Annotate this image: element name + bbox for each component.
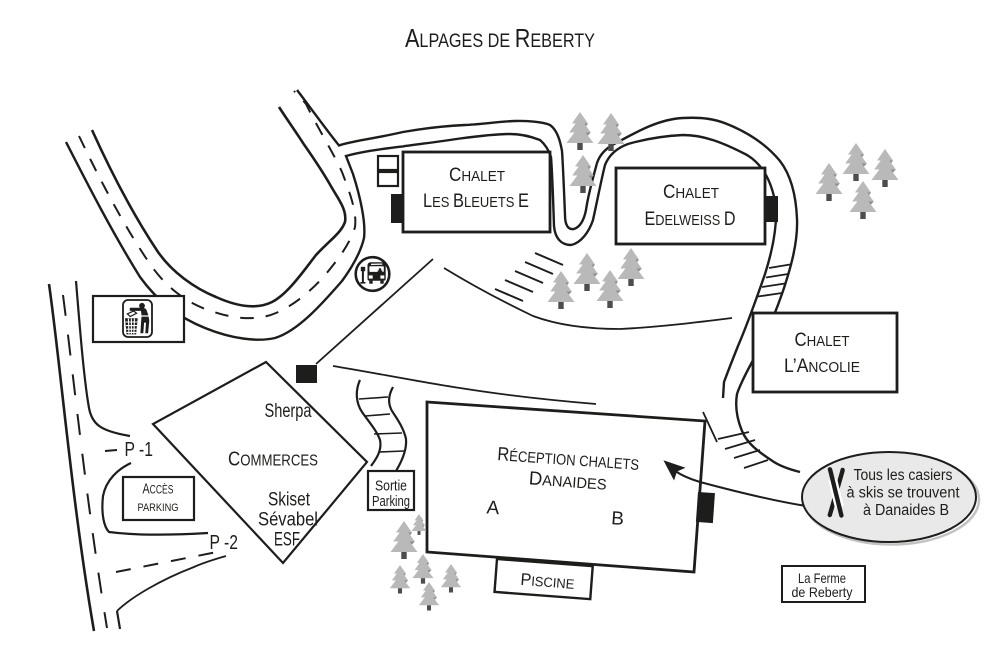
svg-text:ALPAGES DE REBERTY: ALPAGES DE REBERTY bbox=[405, 23, 595, 53]
svg-text:Sherpa: Sherpa bbox=[265, 401, 312, 422]
svg-text:A: A bbox=[486, 497, 500, 519]
svg-text:CHALET: CHALET bbox=[663, 182, 719, 203]
svg-text:ESF: ESF bbox=[274, 530, 300, 551]
svg-text:Sévabel: Sévabel bbox=[258, 510, 318, 531]
svg-text:P -1: P -1 bbox=[125, 439, 154, 461]
svg-text:Skiset: Skiset bbox=[268, 490, 311, 511]
svg-text:CHALET: CHALET bbox=[795, 330, 850, 351]
svg-text:EDELWEISS D: EDELWEISS D bbox=[645, 209, 736, 230]
svg-text:de Reberty: de Reberty bbox=[792, 584, 853, 600]
svg-text:à Danaides B: à Danaides B bbox=[863, 502, 949, 519]
svg-text:Tous les casiers: Tous les casiers bbox=[854, 467, 953, 484]
svg-text:CHALET: CHALET bbox=[449, 165, 505, 186]
svg-text:P -2: P -2 bbox=[210, 532, 239, 554]
svg-text:Sortie: Sortie bbox=[375, 479, 407, 495]
svg-text:LES BLEUETS E: LES BLEUETS E bbox=[423, 191, 529, 212]
svg-text:PARKING: PARKING bbox=[138, 502, 179, 514]
svg-text:ACCÈS: ACCÈS bbox=[143, 481, 174, 498]
svg-text:L’ANCOLIE: L’ANCOLIE bbox=[784, 356, 860, 377]
svg-text:à skis se trouvent: à skis se trouvent bbox=[847, 485, 961, 502]
svg-text:Parking: Parking bbox=[372, 494, 410, 510]
svg-text:B: B bbox=[611, 508, 625, 530]
